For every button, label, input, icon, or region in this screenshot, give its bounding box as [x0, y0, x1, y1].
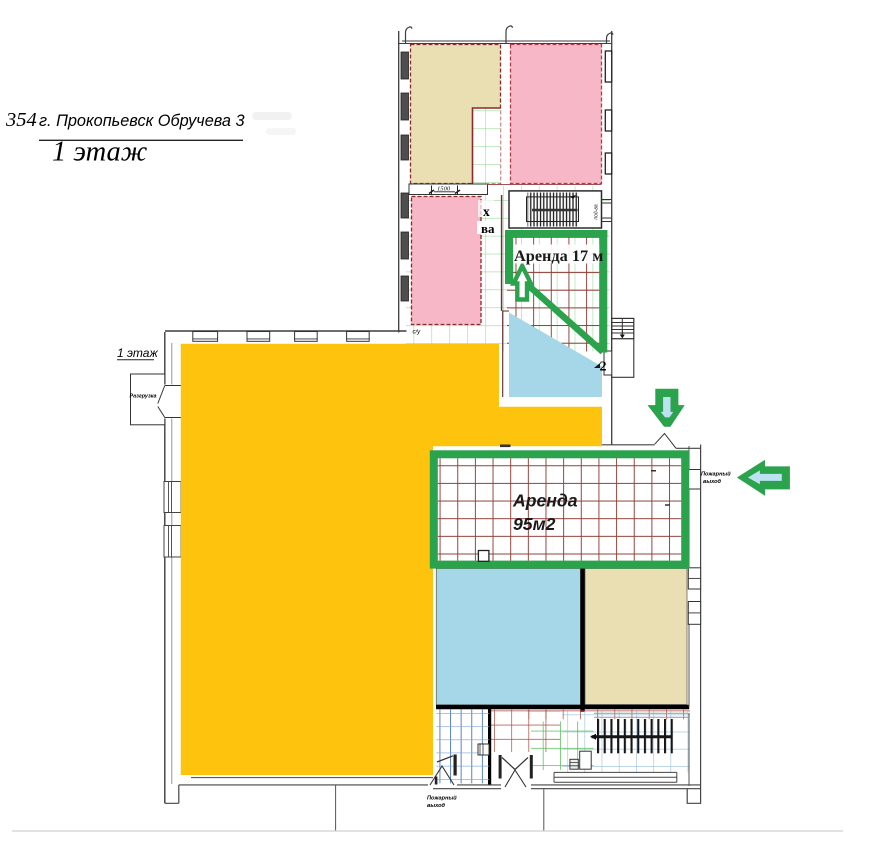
svg-text:выход: выход [427, 803, 446, 809]
svg-text:под-ва: под-ва [594, 204, 600, 219]
svg-text:1 этаж: 1 этаж [117, 346, 158, 360]
svg-text:95м2: 95м2 [513, 514, 556, 534]
svg-text:выход: выход [703, 479, 722, 485]
svg-text:х: х [483, 204, 490, 219]
svg-text:Аренда 17 м: Аренда 17 м [514, 246, 603, 265]
svg-text:2: 2 [600, 360, 607, 375]
svg-text:г. Прокопьевск Обручева 3: г. Прокопьевск Обручева 3 [39, 112, 245, 130]
svg-text:354: 354 [5, 109, 37, 131]
svg-text:Разгрузка: Разгрузка [130, 394, 157, 400]
svg-text:Пожарный: Пожарный [427, 795, 457, 802]
svg-text:Пожарный: Пожарный [701, 471, 731, 478]
svg-text:Аренда: Аренда [512, 490, 578, 510]
svg-text:ва: ва [481, 221, 495, 236]
svg-text:с/у: с/у [413, 330, 422, 336]
svg-text:1 этаж: 1 этаж [52, 137, 148, 168]
